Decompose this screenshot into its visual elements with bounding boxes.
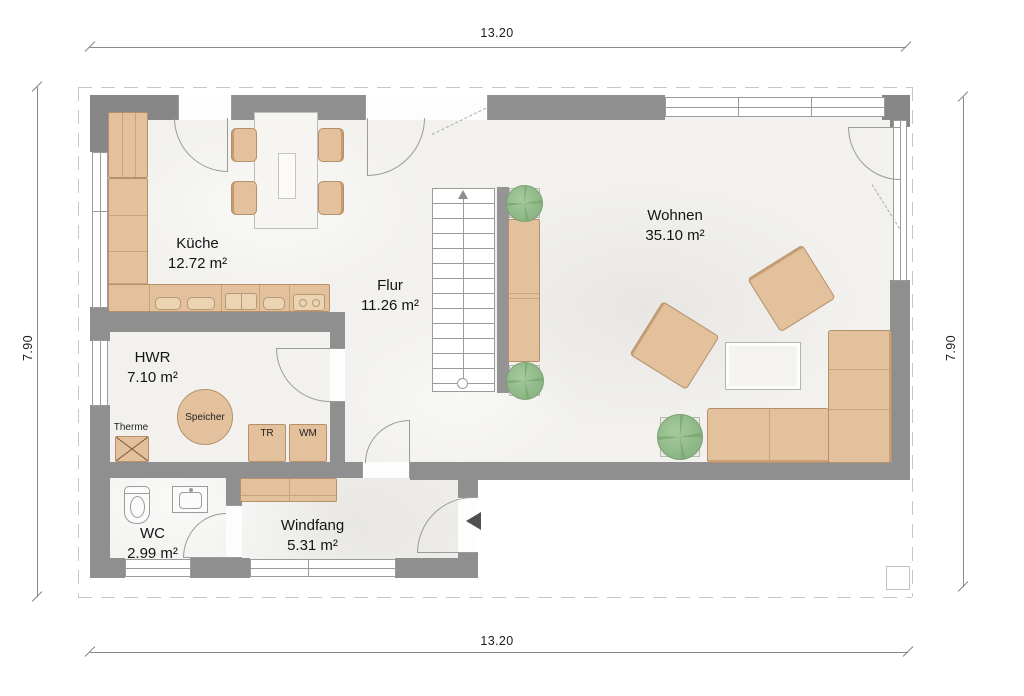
wall-south-wohnen bbox=[410, 462, 910, 480]
window-kitchen-left bbox=[92, 152, 108, 308]
room-label-wohnen: Wohnen 35.10 m² bbox=[610, 206, 740, 245]
wall-right-lower bbox=[890, 280, 910, 480]
entrance-direction-arrow-icon bbox=[466, 512, 481, 530]
room-area: 7.10 m² bbox=[95, 368, 210, 388]
room-name: Wohnen bbox=[610, 206, 740, 226]
kitchen-tall-cabinet bbox=[108, 112, 148, 178]
roof-outline-right bbox=[912, 87, 913, 597]
room-name: Küche bbox=[130, 234, 265, 254]
sideboard bbox=[508, 219, 540, 362]
wall-hwr-flur-lower bbox=[330, 402, 345, 463]
dimension-text-left: 7.90 bbox=[21, 322, 35, 374]
opening-flur-windfang-door bbox=[362, 462, 410, 478]
dining-chair bbox=[231, 181, 257, 215]
wardrobe bbox=[240, 478, 337, 502]
coffee-table bbox=[725, 342, 801, 390]
room-name: WC bbox=[110, 524, 195, 544]
washing-machine-label: WM bbox=[290, 428, 326, 439]
dining-table bbox=[254, 112, 318, 229]
dimension-line-right bbox=[963, 97, 964, 587]
room-area: 11.26 m² bbox=[330, 296, 450, 316]
room-area: 35.10 m² bbox=[610, 226, 740, 246]
dining-chair bbox=[318, 128, 344, 162]
roof-outline-top bbox=[78, 87, 912, 88]
tumble-dryer-label: TR bbox=[249, 428, 285, 439]
room-area: 12.72 m² bbox=[130, 254, 265, 274]
sofa-seat-section bbox=[707, 408, 829, 463]
wall-hwr-wc bbox=[90, 462, 362, 478]
speicher-tank: Speicher bbox=[177, 389, 233, 445]
roof-outline-left bbox=[78, 87, 79, 597]
room-name: HWR bbox=[95, 348, 210, 368]
room-label-kueche: Küche 12.72 m² bbox=[130, 234, 265, 273]
plant bbox=[506, 362, 544, 400]
therme-unit bbox=[115, 436, 149, 462]
roof-outline-bottom bbox=[78, 597, 912, 598]
sofa-chaise-section bbox=[828, 330, 892, 463]
dimension-line-bottom bbox=[90, 652, 908, 653]
dimension-text-bottom: 13.20 bbox=[457, 634, 537, 648]
dining-chair bbox=[318, 181, 344, 215]
cabinet-front bbox=[187, 297, 215, 310]
cooktop bbox=[293, 294, 325, 311]
wall-windfang-right-lower bbox=[458, 553, 478, 578]
dimension-text-top: 13.20 bbox=[457, 26, 537, 40]
washing-machine: WM bbox=[289, 424, 327, 462]
bathroom-sink bbox=[172, 486, 208, 513]
room-name: Flur bbox=[330, 276, 450, 296]
kitchen-counter-bottom bbox=[108, 284, 330, 312]
opening-kitchen-terrace-door bbox=[178, 95, 232, 120]
room-label-windfang: Windfang 5.31 m² bbox=[255, 516, 370, 555]
therme-label: Therme bbox=[105, 422, 157, 433]
dimension-line-top bbox=[90, 47, 906, 48]
downspout-square bbox=[886, 566, 910, 590]
stair-walk-line bbox=[463, 197, 464, 379]
room-area: 2.99 m² bbox=[110, 544, 195, 564]
opening-wc-door bbox=[226, 505, 242, 558]
opening-hwr-door bbox=[330, 348, 345, 402]
stair-walk-line-start bbox=[457, 378, 468, 389]
dimension-text-right: 7.90 bbox=[944, 322, 958, 374]
room-label-flur: Flur 11.26 m² bbox=[330, 276, 450, 315]
dimension-line-left bbox=[37, 87, 38, 597]
wall-wc-windfang-lower bbox=[226, 558, 242, 578]
kitchen-sink bbox=[225, 293, 257, 310]
window-windfang-bottom bbox=[250, 559, 396, 577]
room-area: 5.31 m² bbox=[255, 536, 370, 556]
plant bbox=[657, 414, 703, 460]
wall-top-b bbox=[488, 95, 665, 120]
room-label-wc: WC 2.99 m² bbox=[110, 524, 195, 563]
wall-left-upper bbox=[90, 95, 110, 152]
plant bbox=[506, 185, 543, 222]
speicher-label: Speicher bbox=[185, 412, 224, 423]
dining-chair bbox=[231, 128, 257, 162]
room-name: Windfang bbox=[255, 516, 370, 536]
wall-kueche-hwr bbox=[90, 312, 345, 332]
cabinet-front bbox=[155, 297, 181, 310]
room-label-hwr: HWR 7.10 m² bbox=[95, 348, 210, 387]
wall-hwr-flur-upper bbox=[330, 312, 345, 348]
floor-plan: Speicher Therme TR WM Küche bbox=[0, 0, 1024, 696]
cabinet-front bbox=[263, 297, 285, 310]
tumble-dryer: TR bbox=[248, 424, 286, 462]
window-wohnen-top bbox=[665, 97, 885, 117]
stair-up-arrow-icon bbox=[458, 190, 468, 199]
toilet bbox=[124, 486, 150, 524]
